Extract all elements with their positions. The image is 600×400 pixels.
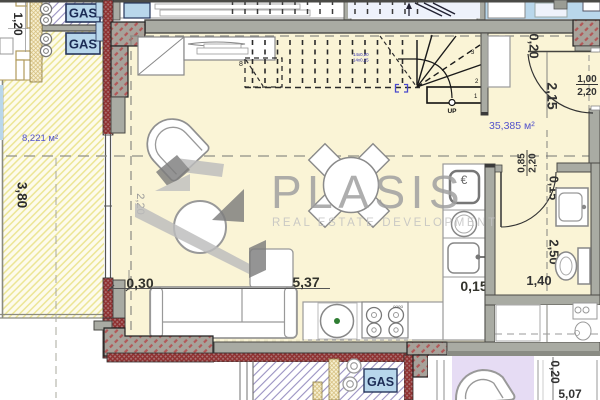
svg-text:UP: UP (447, 108, 457, 115)
svg-text:PLASIS: PLASIS (271, 166, 465, 218)
svg-text:8: 8 (239, 61, 243, 68)
svg-text:0,15: 0,15 (460, 278, 487, 294)
svg-text:GAS: GAS (69, 37, 98, 52)
svg-text:GAS: GAS (69, 6, 98, 21)
svg-text:5,37: 5,37 (292, 274, 319, 290)
svg-text:1,20: 1,20 (11, 12, 25, 36)
svg-text:1,00: 1,00 (577, 74, 597, 85)
svg-text:5,07: 5,07 (558, 387, 582, 400)
svg-text:14x0,20: 14x0,20 (353, 52, 369, 57)
svg-text:oooo: oooo (393, 304, 404, 309)
svg-text:2,20: 2,20 (577, 87, 597, 98)
svg-text:14x0,25: 14x0,25 (353, 58, 369, 63)
svg-text:0,20: 0,20 (527, 33, 542, 58)
svg-text:35,385 м²: 35,385 м² (489, 120, 535, 132)
svg-text:2,20: 2,20 (528, 153, 539, 173)
svg-text:GAS: GAS (367, 375, 394, 389)
svg-text:2,15: 2,15 (544, 82, 560, 109)
svg-text:REAL ESTATE DEVELOPMENT: REAL ESTATE DEVELOPMENT (272, 217, 498, 229)
svg-text:3,80: 3,80 (14, 182, 29, 208)
svg-text:0,85: 0,85 (517, 153, 528, 173)
svg-text:0,20: 0,20 (548, 360, 562, 384)
svg-text:0,30: 0,30 (126, 275, 153, 291)
svg-text:1,40: 1,40 (526, 273, 551, 288)
svg-text:8,221 м²: 8,221 м² (22, 133, 58, 144)
